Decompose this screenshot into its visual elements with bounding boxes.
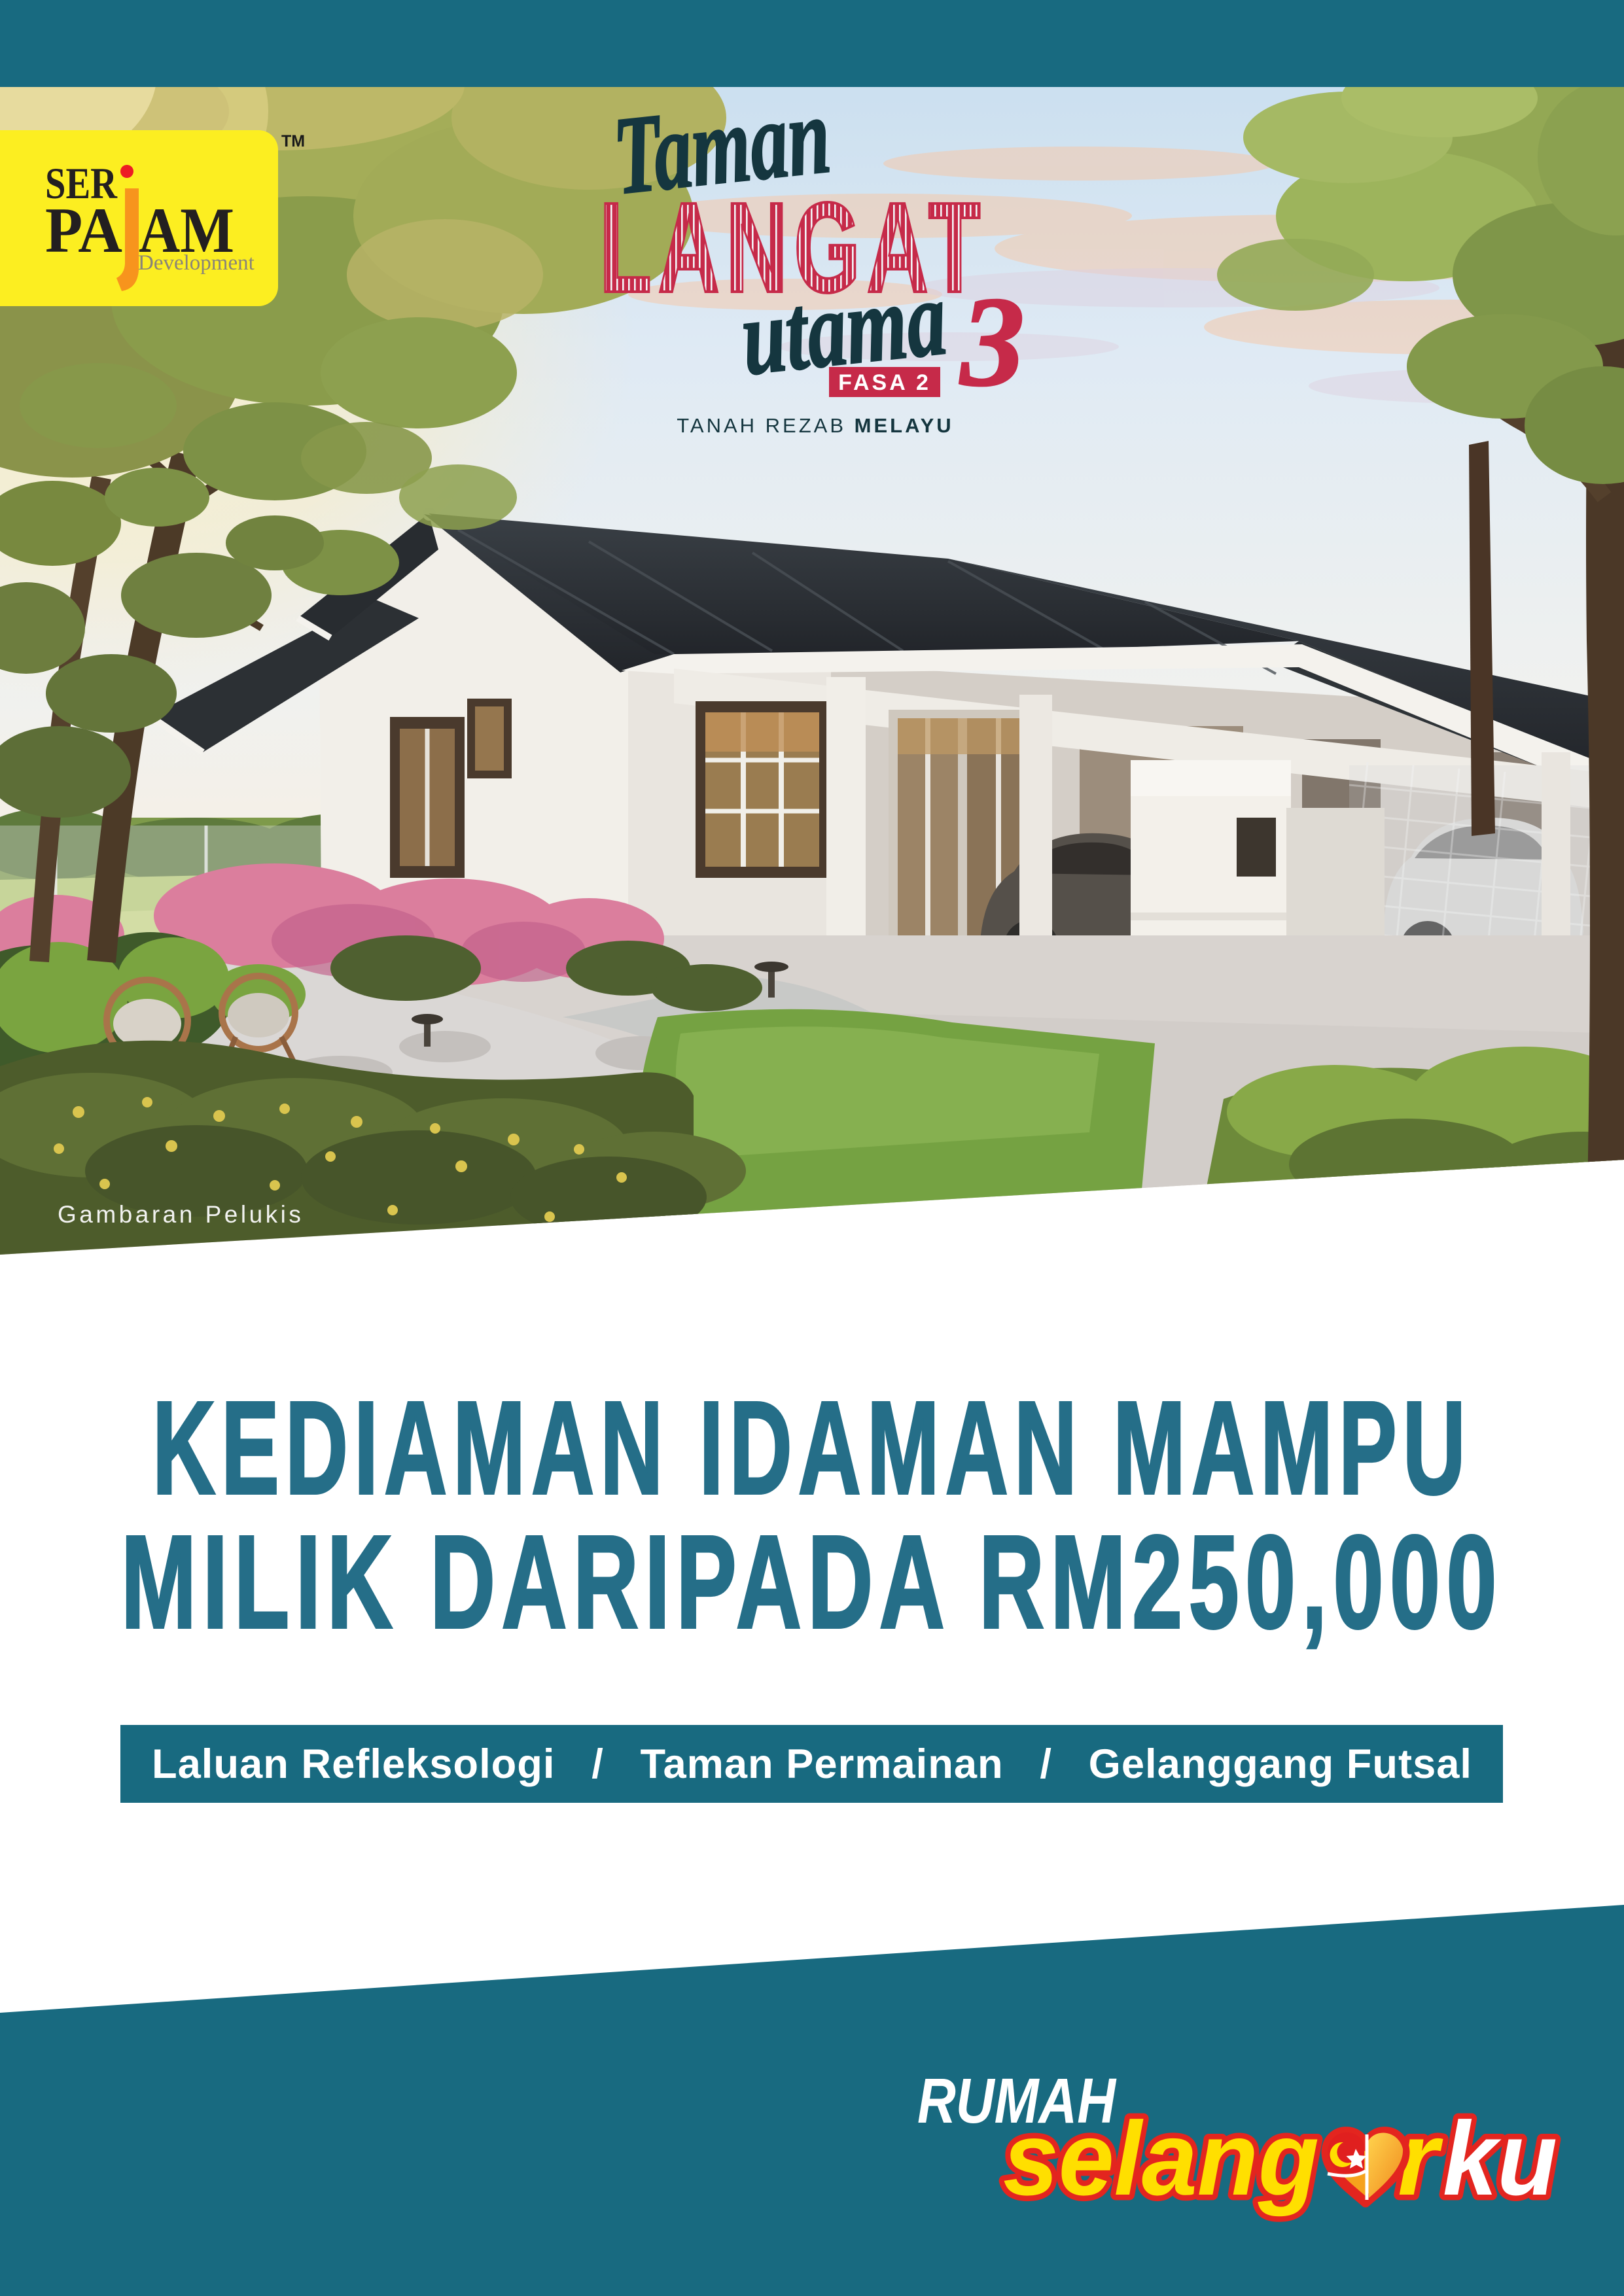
svg-text:Laluan Refleksologi / Tama: Laluan Refleksologi / Taman Permainan / … xyxy=(152,1741,1472,1787)
svg-text:TANAH REZAB MELAYU: TANAH REZAB MELAYU xyxy=(677,414,953,437)
svg-text:selang: selang xyxy=(1003,2100,1319,2217)
svg-text:TM: TM xyxy=(281,132,305,150)
svg-text:ku: ku xyxy=(1443,2100,1557,2217)
svg-text:MILIK DARIPADA RM250,000: MILIK DARIPADA RM250,000 xyxy=(121,1508,1503,1656)
svg-text:Gambaran Pelukis: Gambaran Pelukis xyxy=(58,1201,304,1228)
svg-text:PA: PA xyxy=(45,195,122,266)
svg-text:Development: Development xyxy=(138,251,255,275)
svg-text:3: 3 xyxy=(959,271,1025,413)
svg-text:FASA 2: FASA 2 xyxy=(838,370,931,395)
svg-text:KEDIAMAN IDAMAN MAMPU: KEDIAMAN IDAMAN MAMPU xyxy=(152,1374,1472,1522)
